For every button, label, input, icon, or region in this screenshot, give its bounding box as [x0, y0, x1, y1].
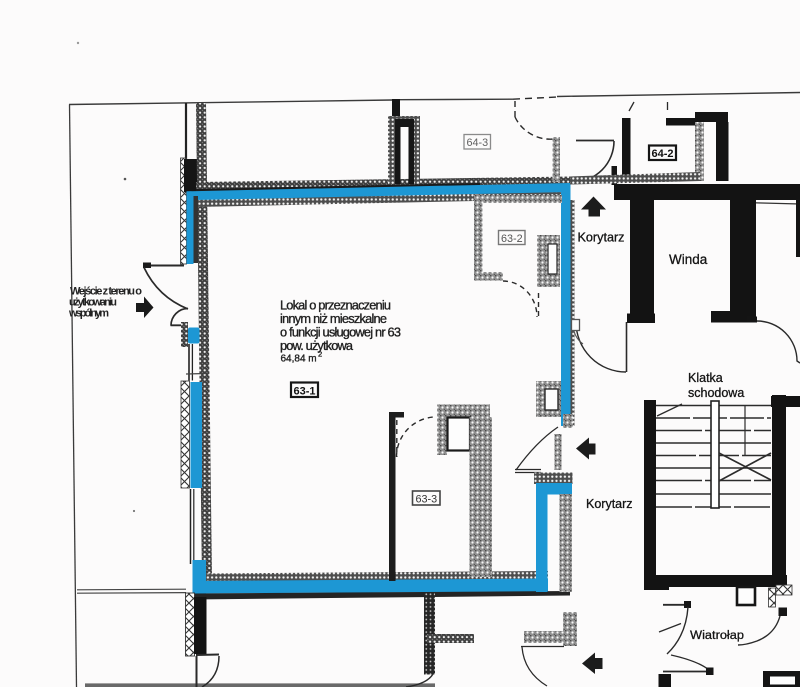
- svg-text:64,84 m: 64,84 m: [281, 354, 317, 365]
- svg-text:63-2: 63-2: [501, 233, 523, 245]
- svg-text:Winda: Winda: [669, 252, 708, 267]
- svg-text:63-1: 63-1: [294, 386, 316, 398]
- svg-text:Korytarz: Korytarz: [586, 497, 633, 511]
- svg-text:Korytarz: Korytarz: [578, 230, 625, 245]
- svg-text:64-3: 64-3: [467, 137, 489, 149]
- svg-text:64-2: 64-2: [652, 148, 674, 160]
- svg-text:2: 2: [318, 350, 322, 359]
- svg-text:63-3: 63-3: [416, 494, 438, 506]
- svg-text:wspólnym: wspólnym: [68, 308, 109, 320]
- svg-text:pow. użytkowa: pow. użytkowa: [280, 338, 354, 353]
- svg-text:Wiatrołap: Wiatrołap: [690, 628, 744, 642]
- svg-text:schodowa: schodowa: [688, 386, 744, 400]
- svg-text:Klatka: Klatka: [688, 371, 723, 385]
